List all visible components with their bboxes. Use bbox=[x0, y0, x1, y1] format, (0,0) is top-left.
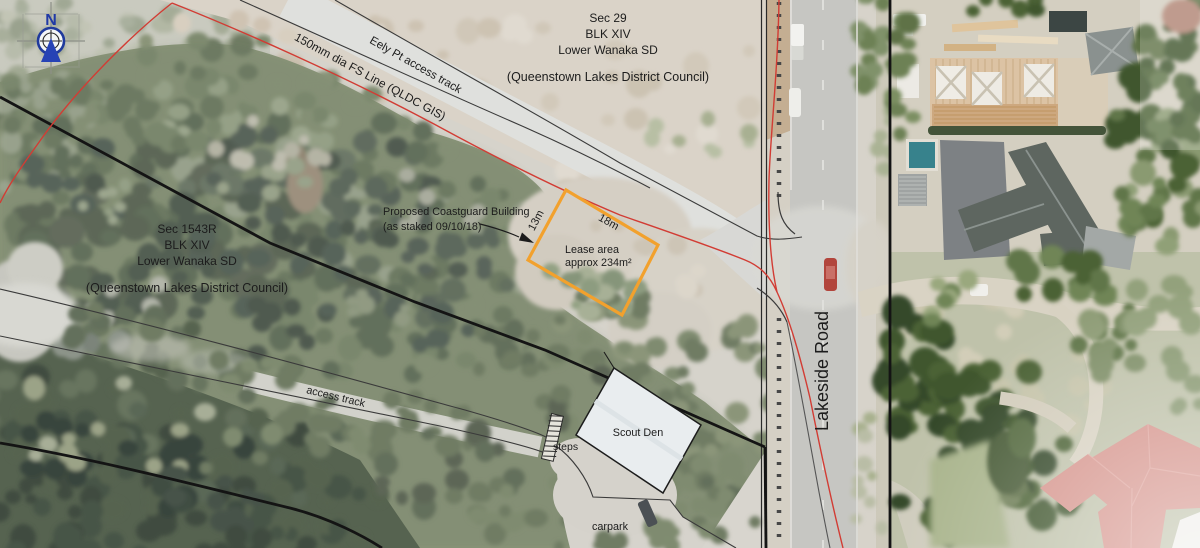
svg-text:Sec 29: Sec 29 bbox=[589, 11, 627, 25]
svg-text:Proposed Coastguard Building: Proposed Coastguard Building bbox=[383, 206, 529, 218]
svg-text:Lease area: Lease area bbox=[565, 244, 619, 256]
svg-text:Sec 1543R: Sec 1543R bbox=[157, 222, 217, 236]
svg-text:Lower Wanaka SD: Lower Wanaka SD bbox=[137, 254, 237, 268]
svg-text:Scout Den: Scout Den bbox=[613, 427, 663, 439]
svg-text:steps: steps bbox=[553, 441, 578, 453]
svg-text:(Queenstown Lakes District Cou: (Queenstown Lakes District Council) bbox=[86, 281, 288, 295]
svg-text:N: N bbox=[45, 12, 57, 29]
svg-text:(as staked 09/10/18): (as staked 09/10/18) bbox=[383, 221, 481, 233]
svg-text:carpark: carpark bbox=[592, 521, 629, 533]
svg-text:BLK XIV: BLK XIV bbox=[164, 238, 209, 252]
svg-text:Lakeside Road: Lakeside Road bbox=[812, 311, 832, 431]
svg-text:BLK XIV: BLK XIV bbox=[585, 27, 630, 41]
svg-text:(Queenstown Lakes District Cou: (Queenstown Lakes District Council) bbox=[507, 70, 709, 84]
svg-text:approx 234m²: approx 234m² bbox=[565, 257, 632, 269]
svg-text:Lower Wanaka SD: Lower Wanaka SD bbox=[558, 43, 658, 57]
